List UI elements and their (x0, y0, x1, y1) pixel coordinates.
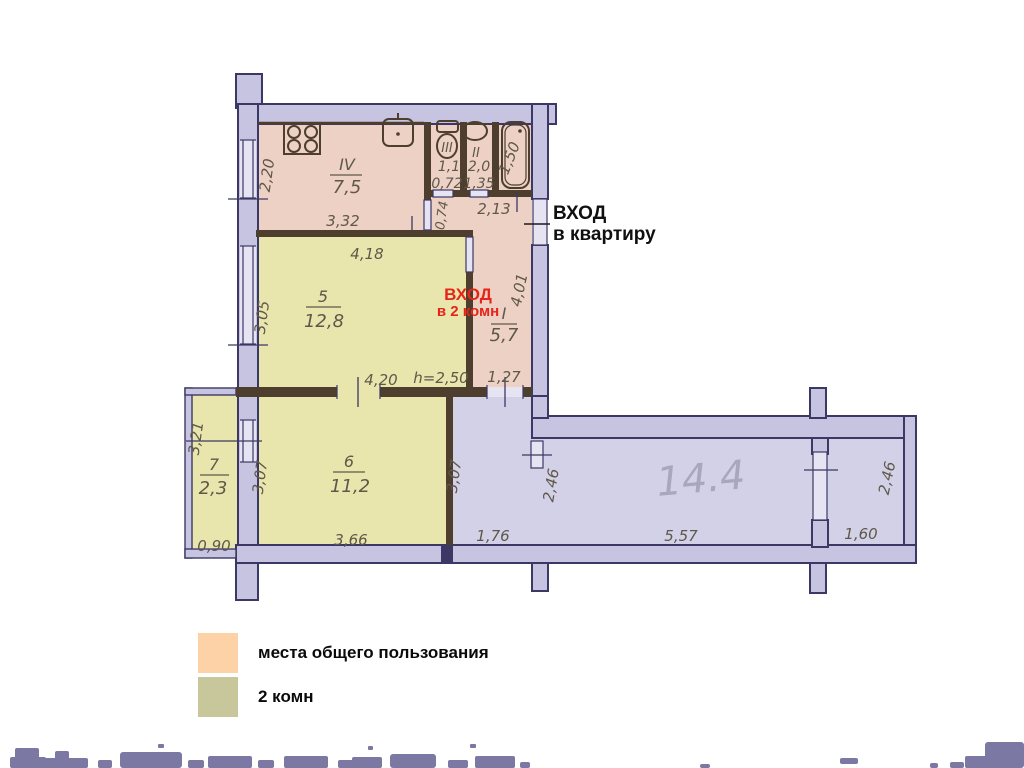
corridor-dim-bottom-left: 1,76 (476, 527, 509, 545)
wc-area-top: 1,1 (438, 159, 460, 175)
kitchen-window (240, 140, 256, 198)
scan-artifacts (10, 742, 1024, 768)
hall-number: I (502, 304, 507, 323)
room5-dim-bottom: 4,20 (364, 371, 397, 389)
corridor-handwritten-area: 14.4 (655, 452, 748, 506)
legend-label-common-areas: места общего пользования (258, 643, 489, 663)
bathroom-dim-bottom: 2,13 (477, 200, 510, 218)
corridor-dim-bottom-right: 1,60 (844, 525, 877, 543)
wall-stub-below-right (810, 563, 826, 593)
wall-stub-below-mid (532, 563, 548, 591)
wall-stub-above-corridor (810, 388, 826, 418)
bathroom-area-bottom: 1,35 (463, 176, 494, 192)
kitchen-number: IV (339, 155, 356, 174)
room6-fill (258, 397, 446, 545)
room6-area: 11,2 (330, 476, 370, 497)
legend-item-two-rooms: 2 комн (198, 677, 489, 717)
bathroom-area-top: 2,0 (468, 159, 490, 175)
hall-dim-bottom: 1,27 (487, 368, 521, 386)
room6-number: 6 (344, 452, 354, 471)
hall-area: 5,7 (490, 325, 519, 346)
legend-item-common-areas: места общего пользования (198, 633, 489, 673)
kitchen-dim-bottom: 3,32 (326, 212, 359, 230)
legend-swatch-common-areas (198, 633, 238, 673)
wc-area-bottom: 0,72 (431, 176, 462, 192)
entrance-apartment-label-line1: ВХОД (553, 203, 607, 224)
legend-label-two-rooms: 2 комн (258, 687, 313, 707)
room5-ceiling-height: h=2,50 (413, 369, 468, 387)
legend: места общего пользования 2 комн (198, 633, 489, 717)
room5-area: 12,8 (304, 311, 344, 332)
corridor-dim-bottom-mid: 5,57 (664, 527, 698, 545)
entrance-apartment-label-line2: в квартиру (553, 224, 656, 245)
balcony-dim-bottom: 0,90 (197, 537, 230, 555)
entrance-two-rooms-label-line2: в 2 комн (437, 303, 499, 320)
room5-number: 5 (318, 287, 328, 306)
floor-plan: IV 7,5 2,20 3,32 III 1,1 0,72 0,74 II 2,… (0, 0, 1024, 768)
apartment-entrance-door (533, 199, 547, 245)
room5-entrance-door (466, 237, 473, 272)
room5-dim-top: 4,18 (350, 245, 383, 263)
corridor-partition-door (813, 452, 827, 520)
kitchen-door (424, 200, 431, 230)
legend-swatch-two-rooms (198, 677, 238, 717)
wc-mark: III (441, 141, 453, 156)
room6-dim-bottom: 3,66 (334, 531, 367, 549)
kitchen-area: 7,5 (333, 177, 362, 198)
balcony-number: 7 (209, 455, 220, 474)
wall-stub-below-left (236, 563, 258, 600)
balcony-area: 2,3 (199, 478, 228, 499)
entrance-two-rooms-label-line1: ВХОД (444, 285, 492, 304)
scanned-floor-plan-page: IV 7,5 2,20 3,32 III 1,1 0,72 0,74 II 2,… (0, 0, 1024, 768)
